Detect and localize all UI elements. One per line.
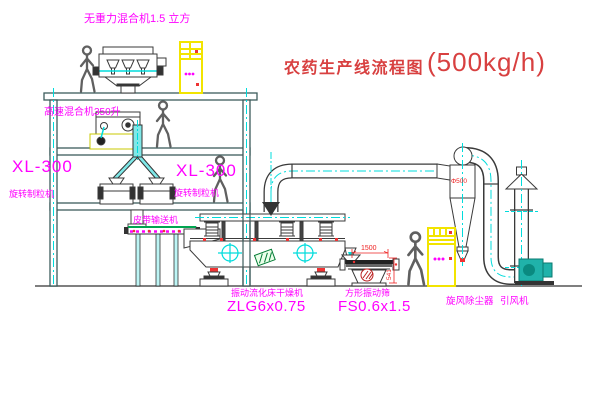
label-gravity-mixer: 无重力混合机1.5 立方: [84, 14, 190, 25]
dim-screen-height: 541: [387, 269, 394, 280]
label-high-speed-mixer: 高速混合机350升: [44, 108, 121, 118]
label-fan: 引风机: [500, 297, 529, 307]
person-icon: [408, 233, 424, 285]
fluid-bed-dryer: [184, 214, 356, 286]
mixer-hoppers: [107, 60, 149, 74]
person-icon: [81, 47, 95, 92]
exhaust-duct: [262, 152, 444, 216]
cyclone-inlet: [437, 164, 450, 180]
person-icon: [157, 102, 171, 147]
title-capacity: (500kg/h): [427, 47, 546, 78]
dim-screen-length: 1500: [361, 245, 377, 252]
screen-motor: [361, 269, 373, 281]
label-screen-model: FS0.6x1.5: [338, 299, 411, 314]
diagram-title: 农药生产线流程图 (500kg/h): [284, 47, 546, 78]
dryer-hood: [200, 214, 345, 221]
y-splitter: [111, 157, 162, 180]
dim-cyclone-diameter: Φ500: [451, 179, 467, 186]
granulator-right: [138, 178, 175, 204]
floor-slab-2: [50, 148, 250, 155]
label-dryer-model: ZLG6x0.75: [227, 299, 306, 314]
roof-slab: [44, 93, 257, 100]
gravity-mixer: [93, 47, 166, 93]
discharge-chute: [133, 120, 142, 160]
label-granulator-mid-model: XL-300: [176, 162, 237, 179]
granulator-left: [98, 178, 135, 204]
cad-flow-diagram: 农药生产线流程图 (500kg/h) 无重力混合机1.5 立方 高速混合机350…: [0, 0, 600, 403]
induced-draft-fan: [515, 259, 554, 285]
label-granulator-left-name: 旋转制粒机: [9, 190, 54, 199]
label-belt-conveyor: 皮带输送机: [133, 216, 178, 225]
label-dryer-name: 振动流化床干燥机: [231, 289, 303, 298]
title-text: 农药生产线流程图: [284, 47, 424, 78]
label-cyclone: 旋风除尘器: [446, 297, 494, 307]
label-granulator-mid-name: 旋转制粒机: [174, 189, 219, 198]
label-screen-name: 方形振动筛: [345, 289, 390, 298]
label-granulator-left-model: XL-300: [12, 158, 73, 175]
